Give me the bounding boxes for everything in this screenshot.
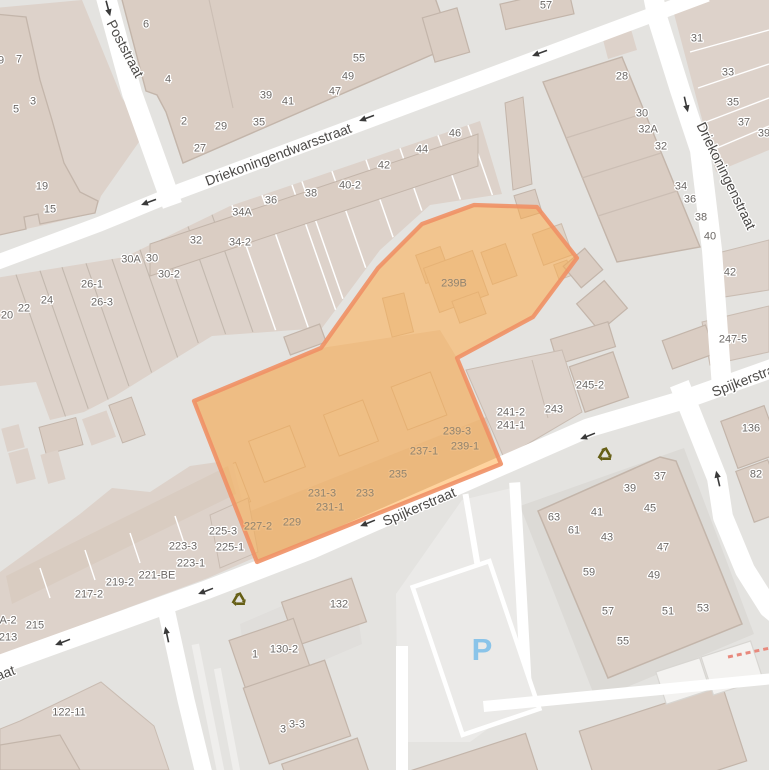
svg-text:3: 3 — [30, 96, 36, 108]
svg-text:57: 57 — [540, 0, 552, 12]
svg-text:43: 43 — [601, 532, 613, 544]
svg-text:7: 7 — [16, 54, 22, 66]
svg-text:221-BE: 221-BE — [139, 570, 176, 582]
svg-text:9: 9 — [0, 55, 4, 67]
svg-text:38: 38 — [695, 212, 707, 224]
svg-text:213: 213 — [0, 632, 17, 644]
svg-text:37: 37 — [654, 471, 666, 483]
svg-text:28: 28 — [616, 71, 628, 83]
svg-text:223-3: 223-3 — [169, 541, 197, 553]
svg-text:32A: 32A — [638, 124, 658, 136]
svg-text:239-1: 239-1 — [451, 441, 479, 453]
svg-text:63: 63 — [548, 512, 560, 524]
svg-text:35: 35 — [253, 117, 265, 129]
svg-text:20: 20 — [1, 310, 13, 322]
svg-text:27: 27 — [194, 143, 206, 155]
svg-text:239B: 239B — [441, 278, 467, 290]
svg-text:40-2: 40-2 — [339, 180, 361, 192]
svg-text:57: 57 — [602, 606, 614, 618]
svg-text:59: 59 — [583, 567, 595, 579]
svg-text:47: 47 — [329, 86, 341, 98]
svg-text:3-3: 3-3 — [289, 719, 305, 731]
svg-text:47: 47 — [657, 542, 669, 554]
svg-text:247-5: 247-5 — [719, 334, 747, 346]
svg-text:42: 42 — [724, 267, 736, 279]
svg-text:36: 36 — [684, 194, 696, 206]
svg-text:130-2: 130-2 — [270, 644, 298, 656]
svg-text:55: 55 — [353, 53, 365, 65]
svg-text:241-1: 241-1 — [497, 420, 525, 432]
svg-text:32: 32 — [190, 235, 202, 247]
svg-text:1: 1 — [252, 649, 258, 661]
svg-text:42: 42 — [378, 160, 390, 172]
svg-text:233: 233 — [356, 488, 374, 500]
svg-text:49: 49 — [648, 570, 660, 582]
svg-text:26-1: 26-1 — [81, 279, 103, 291]
svg-text:22: 22 — [18, 303, 30, 315]
svg-text:45: 45 — [644, 503, 656, 515]
svg-text:33: 33 — [722, 67, 734, 79]
svg-text:245-2: 245-2 — [576, 380, 604, 392]
svg-text:55: 55 — [617, 636, 629, 648]
svg-text:32: 32 — [655, 141, 667, 153]
svg-text:217-2: 217-2 — [75, 589, 103, 601]
svg-text:39: 39 — [260, 90, 272, 102]
svg-text:41: 41 — [591, 507, 603, 519]
svg-text:235: 235 — [389, 469, 407, 481]
svg-text:136: 136 — [742, 423, 760, 435]
svg-text:26-3: 26-3 — [91, 297, 113, 309]
svg-text:30: 30 — [146, 253, 158, 265]
svg-text:225-3: 225-3 — [209, 526, 237, 538]
svg-text:3: 3 — [280, 724, 286, 736]
svg-text:44: 44 — [416, 144, 428, 156]
svg-text:31: 31 — [691, 33, 703, 45]
svg-text:P: P — [472, 632, 493, 667]
svg-text:231-3: 231-3 — [308, 488, 336, 500]
svg-text:19: 19 — [36, 181, 48, 193]
svg-text:215: 215 — [26, 620, 44, 632]
svg-text:61: 61 — [568, 525, 580, 537]
svg-text:51: 51 — [662, 606, 674, 618]
svg-text:34: 34 — [675, 181, 687, 193]
svg-text:2: 2 — [181, 116, 187, 128]
svg-text:227-2: 227-2 — [244, 521, 272, 533]
svg-text:40: 40 — [704, 231, 716, 243]
svg-text:231-1: 231-1 — [316, 502, 344, 514]
svg-text:82: 82 — [750, 469, 762, 481]
svg-text:225-1: 225-1 — [216, 542, 244, 554]
svg-text:49: 49 — [342, 71, 354, 83]
svg-text:122-11: 122-11 — [52, 707, 85, 719]
svg-text:5: 5 — [13, 104, 19, 116]
svg-text:243: 243 — [545, 404, 563, 416]
svg-text:39: 39 — [624, 483, 636, 495]
svg-text:34-2: 34-2 — [229, 237, 251, 249]
svg-text:30-2: 30-2 — [158, 269, 180, 281]
svg-text:223-1: 223-1 — [177, 558, 205, 570]
svg-text:8A-2: 8A-2 — [0, 615, 17, 627]
svg-text:53: 53 — [697, 603, 709, 615]
svg-text:36: 36 — [265, 195, 277, 207]
svg-text:15: 15 — [44, 204, 56, 216]
svg-text:237-1: 237-1 — [410, 446, 438, 458]
svg-text:239-3: 239-3 — [443, 426, 471, 438]
svg-text:229: 229 — [283, 517, 301, 529]
svg-text:37: 37 — [738, 117, 750, 129]
svg-text:29: 29 — [215, 121, 227, 133]
svg-text:241-2: 241-2 — [497, 407, 525, 419]
svg-text:39: 39 — [758, 128, 769, 140]
svg-text:46: 46 — [449, 128, 461, 140]
svg-text:24: 24 — [41, 295, 53, 307]
svg-text:38: 38 — [305, 188, 317, 200]
svg-text:132: 132 — [330, 599, 348, 611]
svg-text:219-2: 219-2 — [106, 577, 134, 589]
svg-text:30: 30 — [636, 108, 648, 120]
svg-text:35: 35 — [727, 97, 739, 109]
svg-text:34A: 34A — [232, 207, 252, 219]
svg-text:30A: 30A — [121, 254, 141, 266]
svg-text:6: 6 — [143, 19, 149, 31]
svg-text:41: 41 — [282, 96, 294, 108]
svg-text:4: 4 — [165, 74, 171, 86]
